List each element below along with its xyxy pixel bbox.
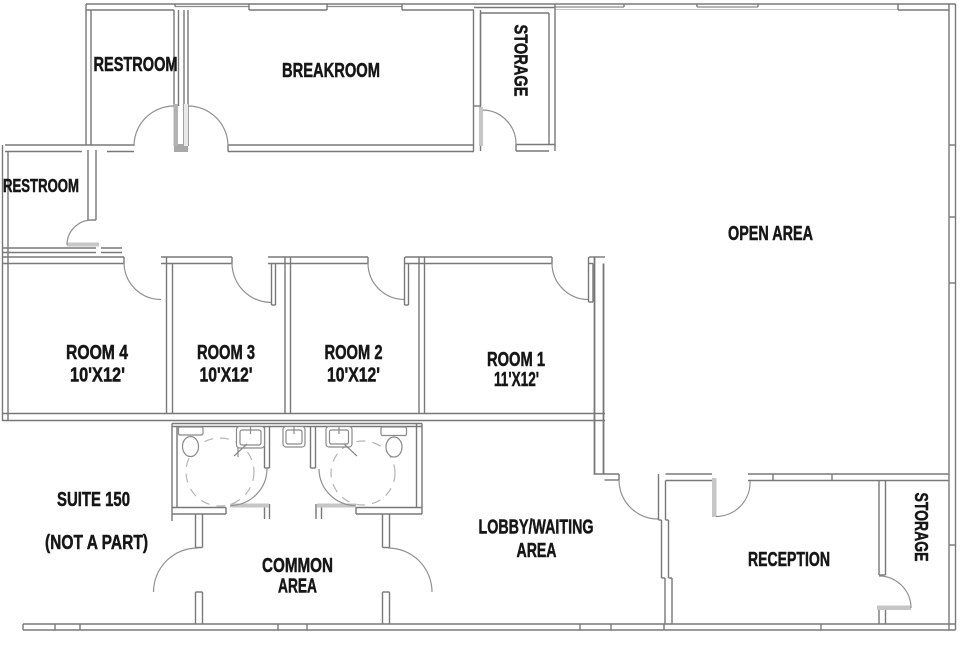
svg-text:10'X12': 10'X12': [70, 365, 125, 387]
svg-text:RESTROOM: RESTROOM: [3, 176, 79, 196]
svg-text:AREA: AREA: [278, 576, 317, 598]
svg-text:AREA: AREA: [517, 540, 557, 562]
svg-text:ROOM 2: ROOM 2: [325, 342, 383, 364]
svg-text:STORAGE: STORAGE: [511, 25, 531, 97]
svg-text:ROOM 3: ROOM 3: [197, 342, 255, 364]
svg-text:LOBBY/WAITING: LOBBY/WAITING: [479, 517, 594, 539]
svg-text:STORAGE: STORAGE: [911, 493, 931, 562]
svg-text:10'X12': 10'X12': [200, 365, 253, 387]
svg-text:BREAKROOM: BREAKROOM: [282, 60, 380, 82]
svg-text:ROOM 4: ROOM 4: [66, 342, 129, 364]
svg-text:10'X12': 10'X12': [327, 365, 380, 387]
svg-text:11'X12': 11'X12': [494, 369, 539, 391]
svg-text:COMMON: COMMON: [262, 555, 333, 577]
svg-text:OPEN AREA: OPEN AREA: [728, 223, 813, 245]
svg-text:SUITE 150: SUITE 150: [57, 489, 130, 511]
svg-text:(NOT A PART): (NOT A PART): [45, 532, 148, 554]
svg-text:RECEPTION: RECEPTION: [748, 549, 830, 571]
svg-text:ROOM 1: ROOM 1: [487, 349, 545, 371]
svg-text:RESTROOM: RESTROOM: [94, 54, 178, 76]
